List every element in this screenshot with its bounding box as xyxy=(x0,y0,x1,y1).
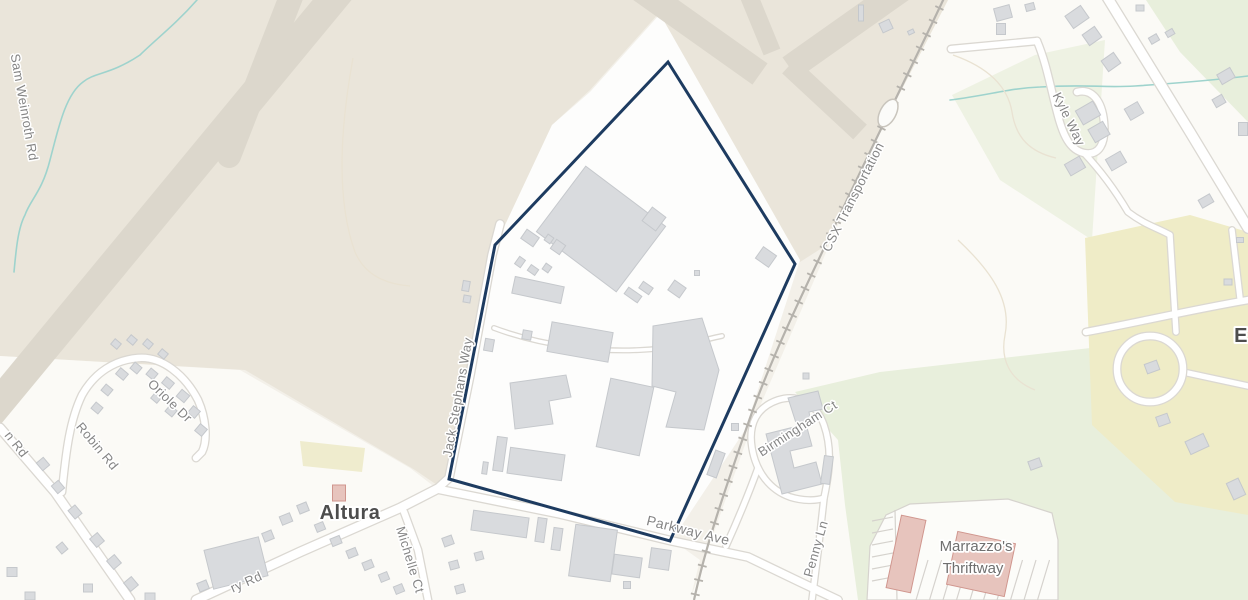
building xyxy=(1224,279,1232,285)
building xyxy=(145,593,155,600)
building xyxy=(732,424,739,431)
building xyxy=(455,584,466,594)
building xyxy=(484,338,495,351)
poi-label-marrazzos-line1: Marrazzo's xyxy=(940,538,1013,555)
building xyxy=(522,330,532,340)
building xyxy=(569,524,618,581)
building xyxy=(462,280,471,291)
building xyxy=(449,560,460,570)
building xyxy=(25,592,35,600)
building xyxy=(612,554,643,578)
building xyxy=(859,5,864,21)
map-canvas[interactable]: Sam Weinroth Rd Oriole Dr Robin Rd n Rd … xyxy=(0,0,1248,600)
building xyxy=(463,295,471,303)
building xyxy=(1136,5,1144,11)
building xyxy=(482,462,489,475)
building xyxy=(1239,123,1248,136)
place-label-e-partial: E xyxy=(1234,325,1248,347)
building xyxy=(1237,238,1244,243)
building xyxy=(7,568,17,577)
commercial-building xyxy=(333,485,346,501)
building xyxy=(84,584,93,592)
place-label-altura: Altura xyxy=(320,502,381,524)
building xyxy=(997,24,1006,35)
poi-label-marrazzos-line2: Thriftway xyxy=(943,560,1004,577)
building xyxy=(695,271,700,276)
building xyxy=(803,373,809,379)
building xyxy=(649,548,672,571)
building xyxy=(624,582,631,589)
building xyxy=(474,551,484,561)
